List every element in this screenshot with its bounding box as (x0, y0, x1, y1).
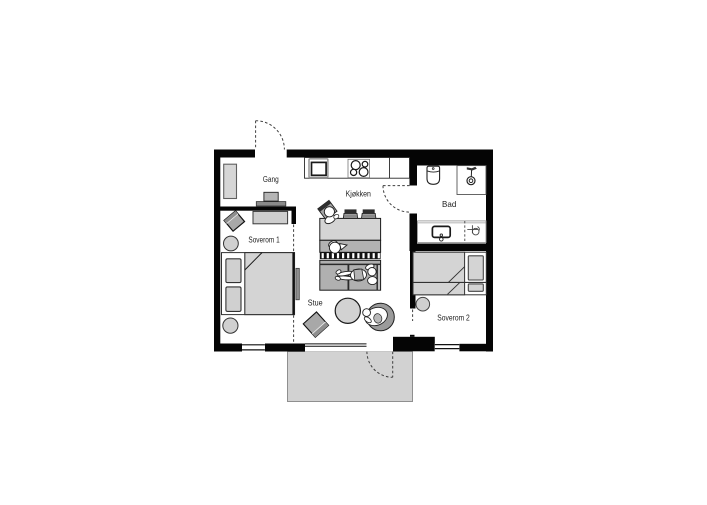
svg-text:Soverom 2: Soverom 2 (437, 313, 470, 323)
svg-text:Stue: Stue (308, 297, 323, 307)
svg-text:Soverom 1: Soverom 1 (248, 234, 279, 244)
svg-text:Bad: Bad (442, 199, 457, 209)
svg-text:Gang: Gang (263, 174, 279, 184)
svg-text:Kjøkken: Kjøkken (346, 188, 371, 198)
